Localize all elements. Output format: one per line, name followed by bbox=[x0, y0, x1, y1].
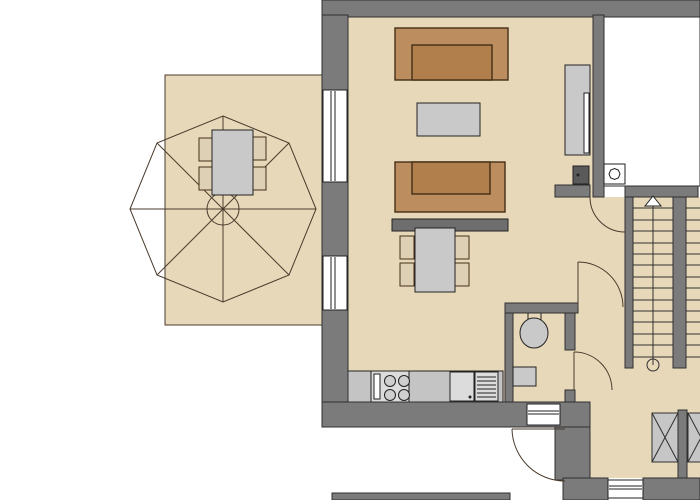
porch-step bbox=[332, 493, 510, 500]
floor-plan bbox=[0, 0, 700, 500]
wall-livingroom-right bbox=[593, 15, 604, 197]
toilet-bowl bbox=[520, 318, 548, 348]
terrace-table bbox=[212, 130, 253, 195]
terrace-chair bbox=[199, 167, 212, 190]
terrace-chair bbox=[199, 138, 212, 161]
dining-chair bbox=[400, 263, 414, 286]
wall-bath-left bbox=[505, 313, 513, 402]
dining-table bbox=[415, 228, 455, 292]
terrace-chair bbox=[253, 137, 266, 160]
wall-hall-east bbox=[625, 185, 698, 197]
wall-top bbox=[322, 0, 700, 17]
burner bbox=[399, 390, 410, 401]
chimney-flue bbox=[609, 169, 620, 180]
terrace-chair bbox=[253, 167, 266, 190]
cooktop-panel bbox=[374, 374, 380, 399]
burner bbox=[385, 390, 396, 401]
wall-bath-top bbox=[505, 303, 578, 313]
wall-stair-left bbox=[625, 197, 633, 368]
wall-bath-right-upper bbox=[565, 313, 575, 350]
adjacent-room bbox=[604, 17, 700, 186]
bath-sink bbox=[513, 367, 536, 386]
dining-chair bbox=[455, 236, 469, 259]
wood-stove-dot bbox=[577, 174, 580, 177]
dining-chair bbox=[400, 236, 414, 259]
sofa-top-seat bbox=[412, 45, 492, 80]
wall-left bbox=[322, 15, 348, 427]
burner bbox=[399, 376, 410, 387]
wall-bottom-east-a bbox=[563, 478, 608, 500]
wall-stair-right bbox=[673, 197, 686, 368]
wood-stove bbox=[573, 166, 589, 184]
wall-hall-west bbox=[555, 185, 590, 197]
floor-plan-page bbox=[0, 0, 700, 500]
wall-shaft-divider bbox=[678, 410, 687, 478]
tv-screen bbox=[584, 93, 589, 153]
wall-entry-side bbox=[555, 427, 590, 480]
coffee-table bbox=[417, 103, 480, 136]
wall-bath-right-lower bbox=[565, 390, 575, 402]
shaft-box bbox=[688, 413, 700, 462]
entry-porch bbox=[348, 427, 555, 500]
sofa-bottom-seat bbox=[412, 162, 490, 194]
burner bbox=[385, 376, 396, 387]
dining-chair bbox=[455, 263, 469, 286]
oven-knob bbox=[469, 396, 472, 399]
wall-bottom-east-b bbox=[643, 478, 700, 500]
